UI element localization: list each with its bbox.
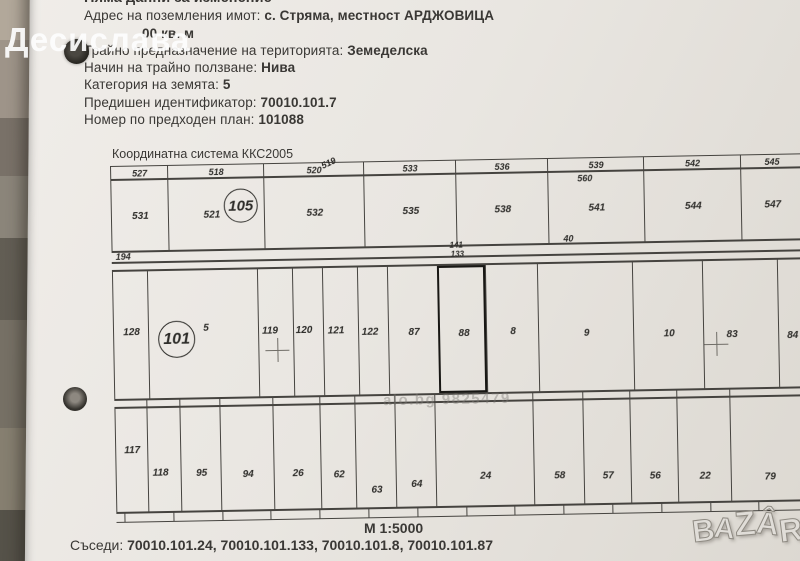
field-value: Нива	[261, 60, 295, 75]
parcel-row: 531521532535538541544547	[110, 167, 800, 252]
logo-letter: Â	[755, 507, 781, 540]
parcel-cell-95: 95	[179, 407, 221, 511]
field-value: 70010.101.7	[261, 95, 337, 110]
road-strip-tick	[354, 396, 355, 404]
parcel-number: 84	[787, 330, 798, 341]
map-label: 141	[449, 241, 463, 250]
parcel-number: 24	[480, 470, 491, 481]
parcel-cell-62: 62	[319, 405, 356, 509]
parcel-cell-518: 518	[167, 164, 263, 178]
parcel-cell-58: 58	[532, 400, 584, 504]
parcel-number: 117	[124, 445, 140, 456]
hole-punch-bottom	[63, 387, 87, 411]
parcel-cell-531: 531	[110, 180, 168, 251]
parcel-cell-527: 527	[110, 166, 167, 179]
parcel-cell-94: 94	[219, 406, 274, 510]
parcel-cell-22: 22	[676, 398, 731, 502]
bottom-strip-tick	[612, 504, 613, 514]
parcel-number: 26	[293, 468, 304, 479]
parcel-number: 79	[765, 471, 776, 482]
bazar-logo: BAZÂR	[692, 510, 800, 544]
parcel-number: 118	[153, 468, 169, 479]
parcel-cell-538: 538	[455, 173, 548, 245]
neighbors-line: Съседи: 70010.101.24, 70010.101.133, 700…	[70, 537, 493, 553]
parcel-number: 121	[328, 325, 345, 336]
parcel-number: 58	[554, 470, 565, 481]
map-scale: М 1:5000	[364, 520, 423, 536]
logo-letter: R	[777, 513, 800, 548]
parcel-row: 1285119120121122878889108384	[112, 258, 800, 400]
parcel-number: 9	[584, 327, 590, 338]
parcel-cell-57: 57	[582, 400, 631, 504]
road-strip-tick	[319, 396, 320, 404]
parcel-number: 531	[132, 211, 149, 222]
parcel-number: 95	[196, 468, 207, 479]
parcel-cell-87: 87	[387, 266, 439, 394]
neighbors-label: Съседи:	[70, 537, 123, 553]
parcel-number: 541	[588, 202, 605, 213]
parcel-cell-121: 121	[322, 267, 359, 395]
parcel-number: 518	[209, 167, 224, 177]
parcel-number: 64	[411, 479, 422, 490]
parcel-number: 536	[494, 162, 509, 172]
parcel-number: 94	[243, 469, 254, 480]
parcel-cell-120: 120	[292, 268, 324, 396]
field-value: с. Стряма, местност АРДЖОВИЦА	[264, 8, 494, 23]
parcel-cell-544: 544	[643, 169, 741, 241]
parcel-cell-9: 9	[537, 262, 634, 391]
parcel-cell-8: 8	[485, 264, 539, 392]
road-strip-tick	[582, 391, 583, 399]
parcel-number: 547	[764, 199, 781, 210]
bottom-strip-tick	[661, 503, 662, 513]
parcel-cell-532: 532	[263, 176, 364, 248]
parcel-cell-10: 10	[632, 261, 704, 389]
road-strip-tick	[729, 389, 730, 397]
parcel-number: 527	[132, 168, 147, 178]
header-line: Номер по предходен план: 101088	[84, 111, 494, 128]
map-label: 560	[577, 173, 592, 183]
parcel-number: 520	[307, 165, 322, 175]
map-label: 40	[563, 234, 573, 244]
parcel-number: 539	[588, 160, 603, 170]
parcel-number: 56	[650, 470, 661, 481]
parcel-number: 542	[685, 158, 700, 168]
parcel-cell-24: 24	[434, 401, 534, 506]
bottom-strip-tick	[368, 508, 369, 518]
parcel-number: 87	[408, 327, 419, 338]
listing-watermark: alo.bg 9825479	[383, 390, 511, 409]
parcel-number: 538	[494, 204, 511, 215]
field-label: Номер по предходен план:	[84, 112, 258, 127]
header-line: Начин на трайно ползване: Нива	[84, 59, 494, 76]
map-label: 194	[116, 252, 131, 262]
bottom-strip-tick	[319, 509, 320, 519]
road-strip-tick	[272, 397, 273, 405]
parcel-number: 88	[458, 328, 469, 339]
parcel-cell-64: 64	[394, 403, 436, 507]
parcel-cell-84: 84	[777, 259, 800, 386]
parcel-number: 62	[334, 470, 345, 481]
field-label: Предишен идентификатор:	[84, 95, 261, 110]
parcel-cell-536: 536	[455, 159, 547, 173]
logo-letter: A	[713, 514, 736, 545]
field-value: 101088	[258, 112, 304, 127]
parcel-number: 545	[764, 157, 779, 167]
parcel-number: 120	[296, 325, 313, 336]
bottom-strip-tick	[514, 506, 515, 516]
coordinate-system-note: Координатна система ККС2005	[112, 147, 293, 161]
parcel-cell-545: 545	[740, 154, 800, 167]
bottom-strip-tick	[222, 511, 223, 521]
parcel-cell-119: 119	[257, 269, 294, 397]
road-strip-tick	[146, 399, 147, 407]
road-strip-tick	[219, 398, 220, 406]
parcel-row: 117118959426626364245857562279	[114, 395, 800, 513]
logo-letter: Z	[734, 506, 758, 542]
parcel-cell-535: 535	[363, 175, 456, 247]
parcel-cell-520: 520	[263, 162, 363, 176]
bottom-strip-tick	[270, 510, 271, 520]
road-strip-tick	[179, 399, 180, 407]
parcel-number: 57	[603, 470, 614, 481]
field-label: Начин на трайно ползване:	[84, 60, 261, 75]
parcel-cell-547: 547	[740, 168, 800, 239]
field-value: Земеделска	[347, 43, 428, 58]
parcel-number: 533	[402, 163, 417, 173]
header-line: Предишен идентификатор: 70010.101.7	[84, 94, 494, 111]
parcel-number: 544	[685, 201, 702, 212]
parcel-cell-56: 56	[629, 399, 678, 503]
parcel-number: 22	[700, 470, 711, 481]
bottom-strip-tick	[173, 512, 174, 522]
owner-watermark: Десислава	[5, 21, 190, 59]
parcel-number: 122	[362, 326, 379, 337]
parcel-cell-541: 541	[547, 171, 644, 243]
parcel-cell-83: 83	[702, 260, 779, 388]
map-label: 133	[451, 250, 465, 259]
parcel-cell-26: 26	[272, 405, 321, 509]
document-header: Няма данни за изменение Адрес на поземле…	[84, 0, 494, 128]
parcel-cell-118: 118	[146, 408, 181, 512]
parcel-cell-117: 117	[114, 408, 148, 512]
bottom-strip-tick	[417, 507, 418, 517]
survey-cross	[265, 338, 289, 362]
header-top-line: Няма данни за изменение	[84, 0, 494, 7]
field-value: 5	[223, 77, 231, 92]
field-label: Категория на земята:	[84, 77, 223, 92]
header-line: Категория на земята: 5	[84, 76, 494, 93]
parcel-cell-122: 122	[357, 267, 389, 395]
survey-cross	[704, 332, 728, 356]
photo-scene: Няма данни за изменение Адрес на поземле…	[0, 0, 800, 561]
bottom-strip-tick	[563, 505, 564, 515]
parcel-cell-533: 533	[363, 161, 455, 175]
parcel-cell-88: 88	[437, 265, 487, 393]
parcel-number: 535	[402, 206, 419, 217]
neighbors-value: 70010.101.24, 70010.101.133, 70010.101.8…	[123, 537, 493, 553]
parcel-number: 119	[262, 325, 278, 336]
parcel-number: 532	[306, 208, 323, 219]
parcel-cell-79: 79	[729, 396, 800, 500]
road-strip-tick	[629, 391, 630, 399]
parcel-cell-63: 63	[354, 404, 396, 508]
parcel-cell-128: 128	[112, 271, 149, 399]
bottom-strip-tick	[466, 507, 467, 517]
road-strip-tick	[532, 392, 533, 400]
parcel-cell-539: 539	[547, 157, 643, 171]
parcel-cell-542: 542	[643, 155, 740, 169]
parcel-number: 128	[123, 327, 140, 338]
cadastral-map: 5275185205335365395425455315215325355385…	[110, 153, 800, 536]
parcel-number: 10	[664, 328, 675, 339]
parcel-number: 5	[203, 323, 209, 334]
parcel-number: 8	[510, 326, 516, 337]
road-strip-tick	[676, 390, 677, 398]
parcel-number: 63	[371, 485, 382, 496]
bottom-strip-tick	[124, 513, 125, 523]
parcel-number: 521	[203, 209, 220, 220]
